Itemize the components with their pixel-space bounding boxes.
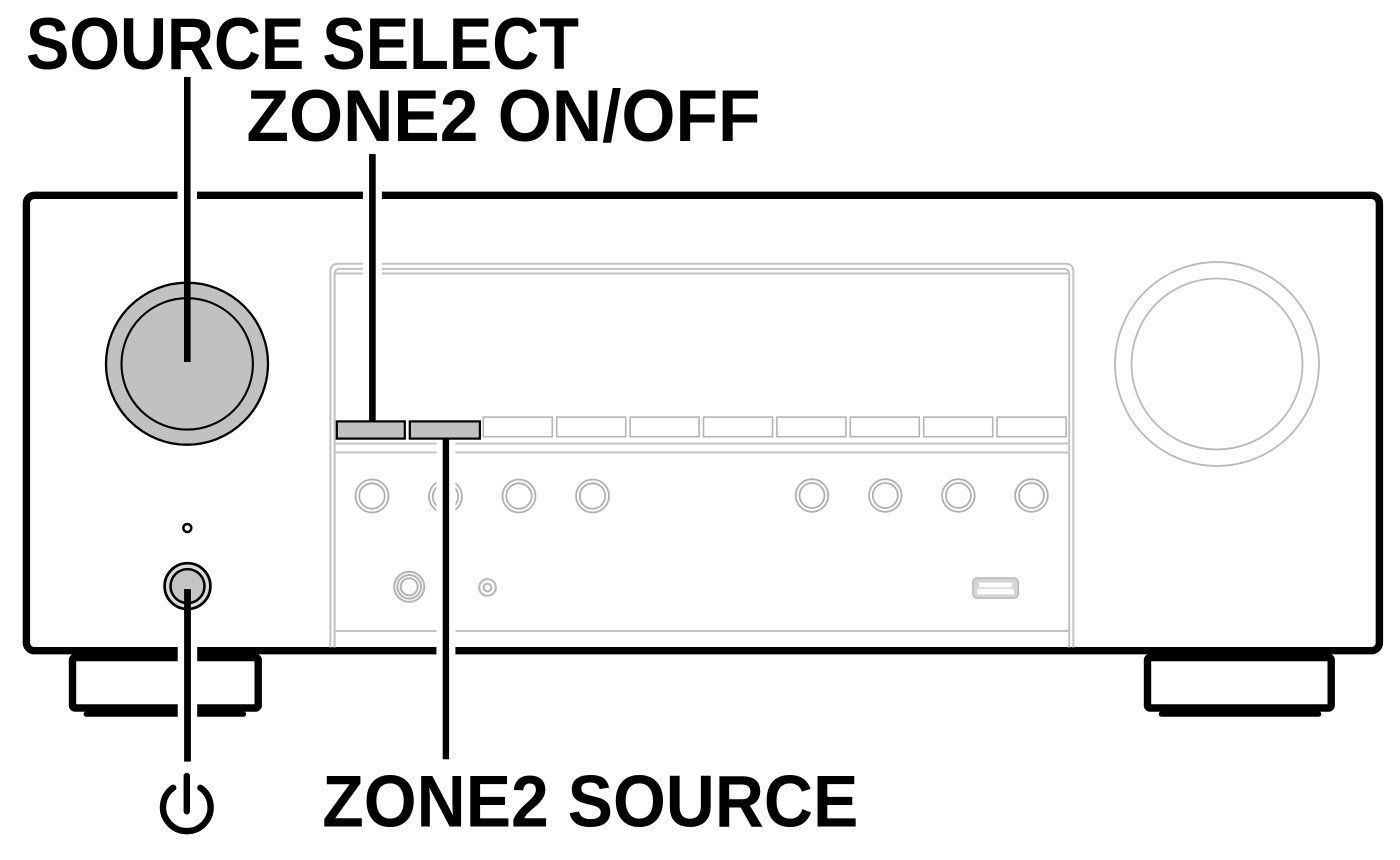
svg-text:ZONE2 SOURCE: ZONE2 SOURCE bbox=[322, 762, 858, 843]
svg-text:SOURCE SELECT: SOURCE SELECT bbox=[26, 4, 579, 85]
svg-text:ZONE2 ON/OFF: ZONE2 ON/OFF bbox=[247, 76, 761, 157]
